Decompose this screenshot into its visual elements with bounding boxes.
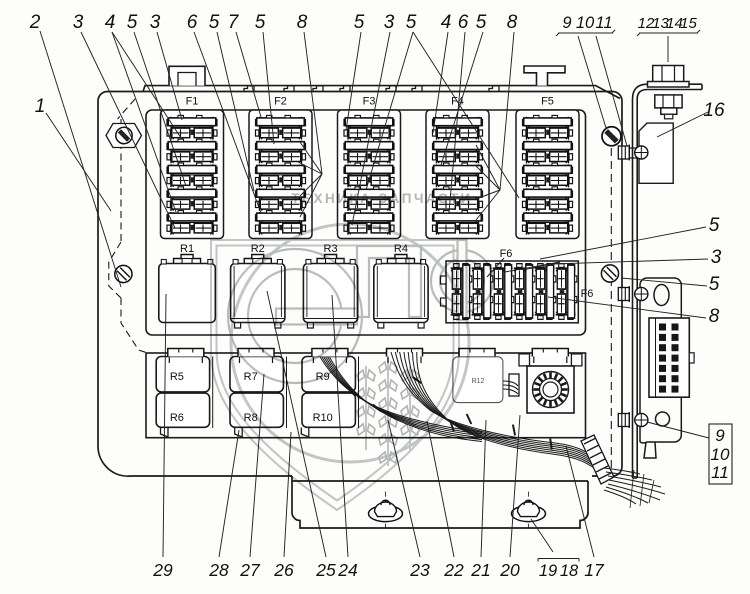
svg-text:R10: R10: [313, 412, 333, 424]
svg-text:10: 10: [711, 445, 730, 464]
svg-text:5: 5: [209, 12, 220, 33]
svg-text:17: 17: [584, 560, 605, 580]
svg-text:24: 24: [337, 560, 358, 580]
svg-text:19: 19: [539, 562, 557, 580]
svg-text:6: 6: [458, 12, 469, 33]
svg-text:11: 11: [711, 463, 729, 482]
svg-text:23: 23: [409, 560, 430, 580]
svg-text:ТЕХНИКА ЗАПЧАСТИ: ТЕХНИКА ЗАПЧАСТИ: [291, 191, 472, 206]
svg-text:R7: R7: [244, 371, 258, 383]
svg-text:3: 3: [384, 12, 395, 33]
svg-text:16: 16: [703, 100, 725, 121]
svg-text:5: 5: [709, 274, 720, 295]
svg-text:2: 2: [29, 12, 41, 33]
svg-text:6: 6: [187, 12, 198, 33]
svg-text:3: 3: [150, 12, 161, 33]
svg-text:28: 28: [208, 560, 229, 580]
svg-text:F1: F1: [186, 96, 199, 108]
svg-text:20: 20: [499, 560, 520, 580]
svg-text:F5: F5: [541, 96, 554, 108]
svg-text:9: 9: [715, 426, 725, 445]
svg-text:25: 25: [315, 560, 336, 580]
svg-text:4: 4: [105, 12, 116, 33]
svg-text:F2: F2: [274, 96, 287, 108]
svg-text:R6: R6: [170, 412, 184, 424]
svg-text:15: 15: [680, 15, 697, 32]
svg-text:5: 5: [354, 12, 365, 33]
svg-text:21: 21: [470, 560, 490, 580]
svg-text:F6: F6: [500, 248, 513, 260]
svg-text:5: 5: [255, 12, 266, 33]
svg-text:R12: R12: [472, 378, 485, 385]
svg-text:3: 3: [711, 247, 722, 268]
svg-text:29: 29: [152, 560, 173, 580]
svg-text:8: 8: [297, 12, 308, 33]
svg-text:5: 5: [127, 12, 138, 33]
svg-text:22: 22: [443, 560, 464, 580]
svg-text:5: 5: [709, 215, 720, 236]
svg-text:26: 26: [273, 560, 294, 580]
svg-text:R5: R5: [170, 371, 184, 383]
svg-text:9: 9: [562, 14, 571, 32]
svg-text:F6: F6: [581, 288, 594, 300]
svg-text:10: 10: [576, 14, 595, 32]
svg-text:4: 4: [441, 12, 452, 33]
svg-text:11: 11: [595, 14, 612, 32]
svg-text:27: 27: [239, 560, 261, 580]
svg-text:5: 5: [476, 12, 487, 33]
svg-text:8: 8: [709, 306, 720, 327]
svg-text:7: 7: [228, 12, 240, 33]
svg-text:1: 1: [35, 96, 46, 117]
svg-text:8: 8: [507, 12, 518, 33]
svg-text:3: 3: [73, 12, 84, 33]
svg-text:F3: F3: [363, 96, 376, 108]
svg-text:18: 18: [560, 562, 579, 580]
svg-text:5: 5: [406, 12, 417, 33]
svg-text:R1: R1: [180, 243, 194, 255]
